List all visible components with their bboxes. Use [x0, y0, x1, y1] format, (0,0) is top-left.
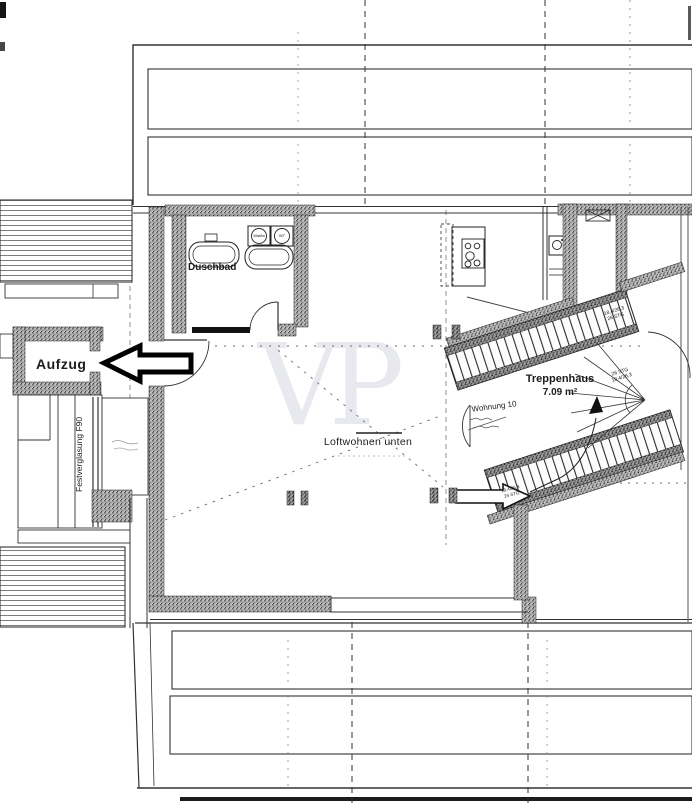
terrace-hatch-bottom: [0, 530, 130, 627]
elevator-room: [0, 327, 103, 395]
roof-band-bottom: [133, 620, 692, 789]
label-accents: [338, 417, 506, 456]
elevator-arrow-icon: [104, 346, 191, 381]
bath-door: [250, 302, 278, 330]
roof-band-top: [133, 45, 692, 205]
terrace-hatch-top: [0, 200, 132, 298]
floorplan-drawing: [0, 0, 692, 803]
bathroom: [172, 215, 308, 336]
column-symbols: [287, 325, 460, 505]
floorplan-canvas: VP: [0, 0, 692, 803]
washer-dryer-icons: [248, 226, 293, 246]
stairwell: [444, 262, 690, 600]
